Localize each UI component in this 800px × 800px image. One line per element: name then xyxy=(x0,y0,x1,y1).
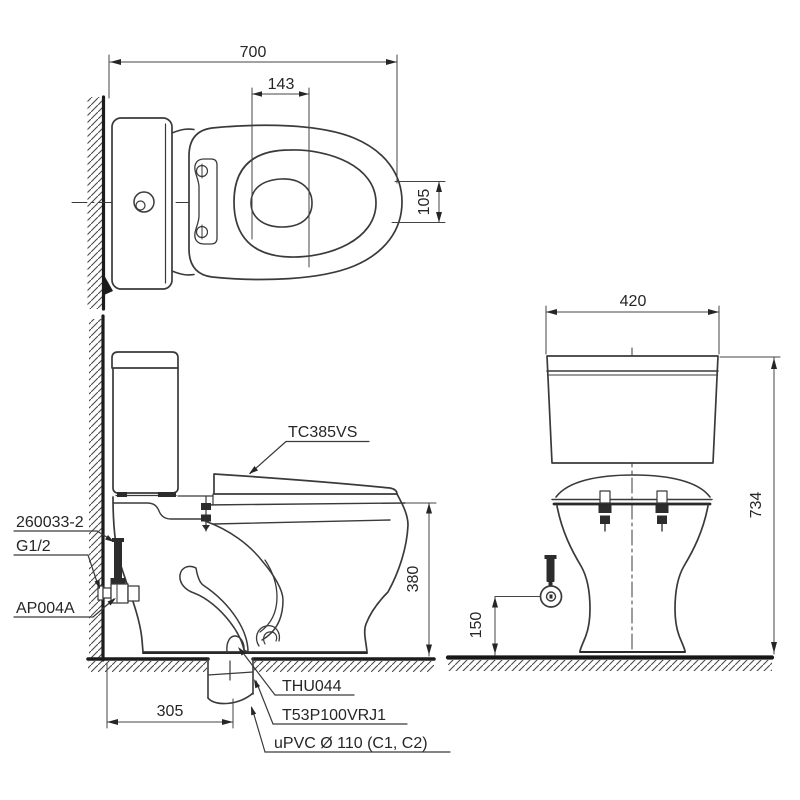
dimension-150 xyxy=(492,597,540,656)
tank-front xyxy=(547,356,718,463)
side-view: 380 305 TC385VS 260033-2 G1/2 xyxy=(14,316,450,752)
seat-bolt-right xyxy=(656,491,669,531)
trapway-outer-curve xyxy=(205,521,283,640)
seat-bolt-nut-2 xyxy=(201,515,211,522)
water-jet-swoosh xyxy=(180,566,248,652)
dim-305-label: 305 xyxy=(157,703,184,720)
seat-bolt-tip xyxy=(202,525,210,531)
toilet-dimension-drawing: 700 143 105 xyxy=(0,0,800,800)
rim-bottom-line xyxy=(213,520,390,524)
tank-foot-left xyxy=(117,492,127,497)
supply-riser xyxy=(114,541,122,580)
drain-pipe-text: uPVC Ø 110 (C1, C2) xyxy=(274,735,428,752)
floor-hatch-right xyxy=(254,661,434,672)
wall-hatch xyxy=(89,319,102,660)
floor-hatch-left xyxy=(88,661,207,672)
dim-700-label: 700 xyxy=(240,44,267,61)
seat-lid-front xyxy=(556,475,710,497)
supply-valve-front xyxy=(541,555,562,607)
dim-143-label: 143 xyxy=(268,76,295,93)
seat-lid-side xyxy=(214,474,397,494)
pedestal-right-edge xyxy=(675,506,708,651)
front-view: 420 734 150 xyxy=(448,293,780,671)
label-thread: G1/2 xyxy=(14,538,100,589)
tank-lid-side xyxy=(112,352,178,368)
tank-foot-right xyxy=(158,492,176,497)
dim-150-label: 150 xyxy=(468,612,485,639)
bowl-body-top-edge xyxy=(172,129,194,133)
label-seat-model: TC385VS xyxy=(249,424,369,474)
outlet-flange-text: THU044 xyxy=(282,678,342,695)
seat-bolt-nut-1 xyxy=(201,503,211,510)
rim-top-line xyxy=(203,503,405,505)
dim-380-label: 380 xyxy=(405,566,422,593)
bowl-body-bottom-edge xyxy=(172,271,194,275)
top-view: 700 143 105 xyxy=(72,44,445,309)
fill-valve-text: 260033-2 xyxy=(16,514,84,531)
shelf-line xyxy=(113,503,201,519)
seat-model-text: TC385VS xyxy=(288,424,357,441)
stop-valve-text: AP004A xyxy=(16,600,75,617)
drawing-sheet: 700 143 105 xyxy=(0,0,800,800)
floor-outlet xyxy=(208,659,253,704)
dim-420-label: 420 xyxy=(620,293,647,310)
dimension-420 xyxy=(546,306,719,354)
trapway-inner-curve xyxy=(260,560,277,632)
floor-hatch xyxy=(448,660,772,671)
bowl-model-text: T53P100VRJ1 xyxy=(282,707,386,724)
seat-bolt-left xyxy=(599,491,612,531)
thread-text: G1/2 xyxy=(16,538,51,555)
tank-side xyxy=(113,368,178,493)
tank-plan xyxy=(112,118,172,289)
dim-734-label: 734 xyxy=(748,492,765,519)
pedestal-left-edge xyxy=(557,506,590,651)
dim-105-label: 105 xyxy=(416,189,433,216)
